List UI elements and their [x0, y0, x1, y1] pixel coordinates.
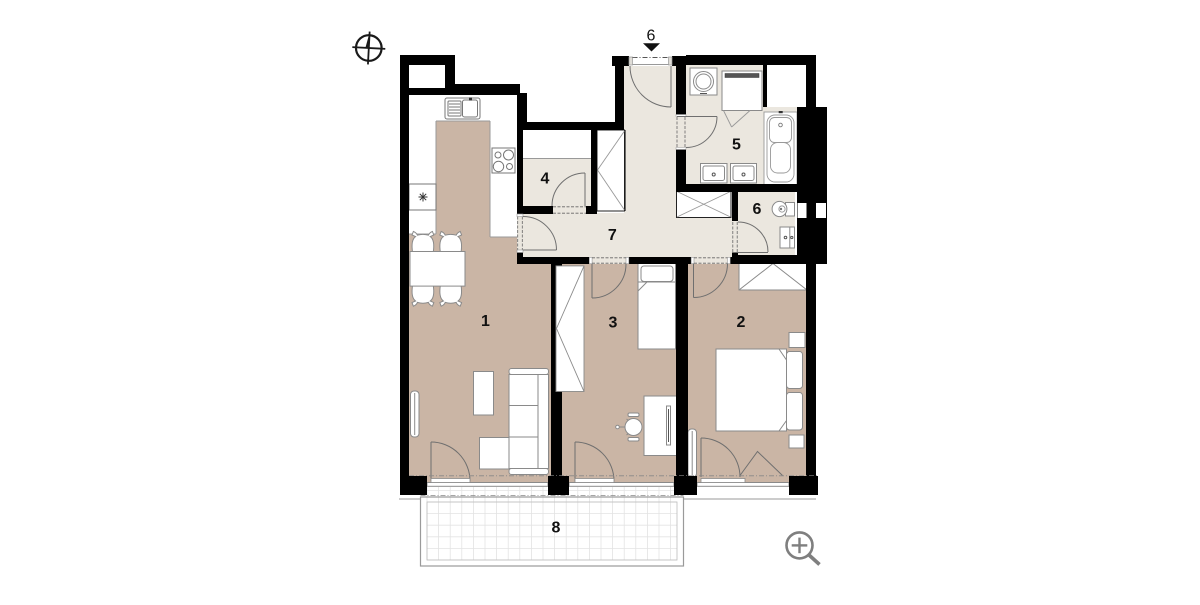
- svg-text:8: 8: [552, 520, 561, 537]
- svg-text:4: 4: [541, 171, 550, 188]
- svg-text:6: 6: [753, 201, 762, 218]
- svg-text:5: 5: [732, 137, 741, 154]
- svg-text:1: 1: [481, 313, 490, 330]
- svg-text:2: 2: [737, 314, 746, 331]
- svg-text:6: 6: [647, 28, 656, 45]
- svg-text:7: 7: [608, 227, 617, 244]
- svg-text:3: 3: [609, 315, 618, 332]
